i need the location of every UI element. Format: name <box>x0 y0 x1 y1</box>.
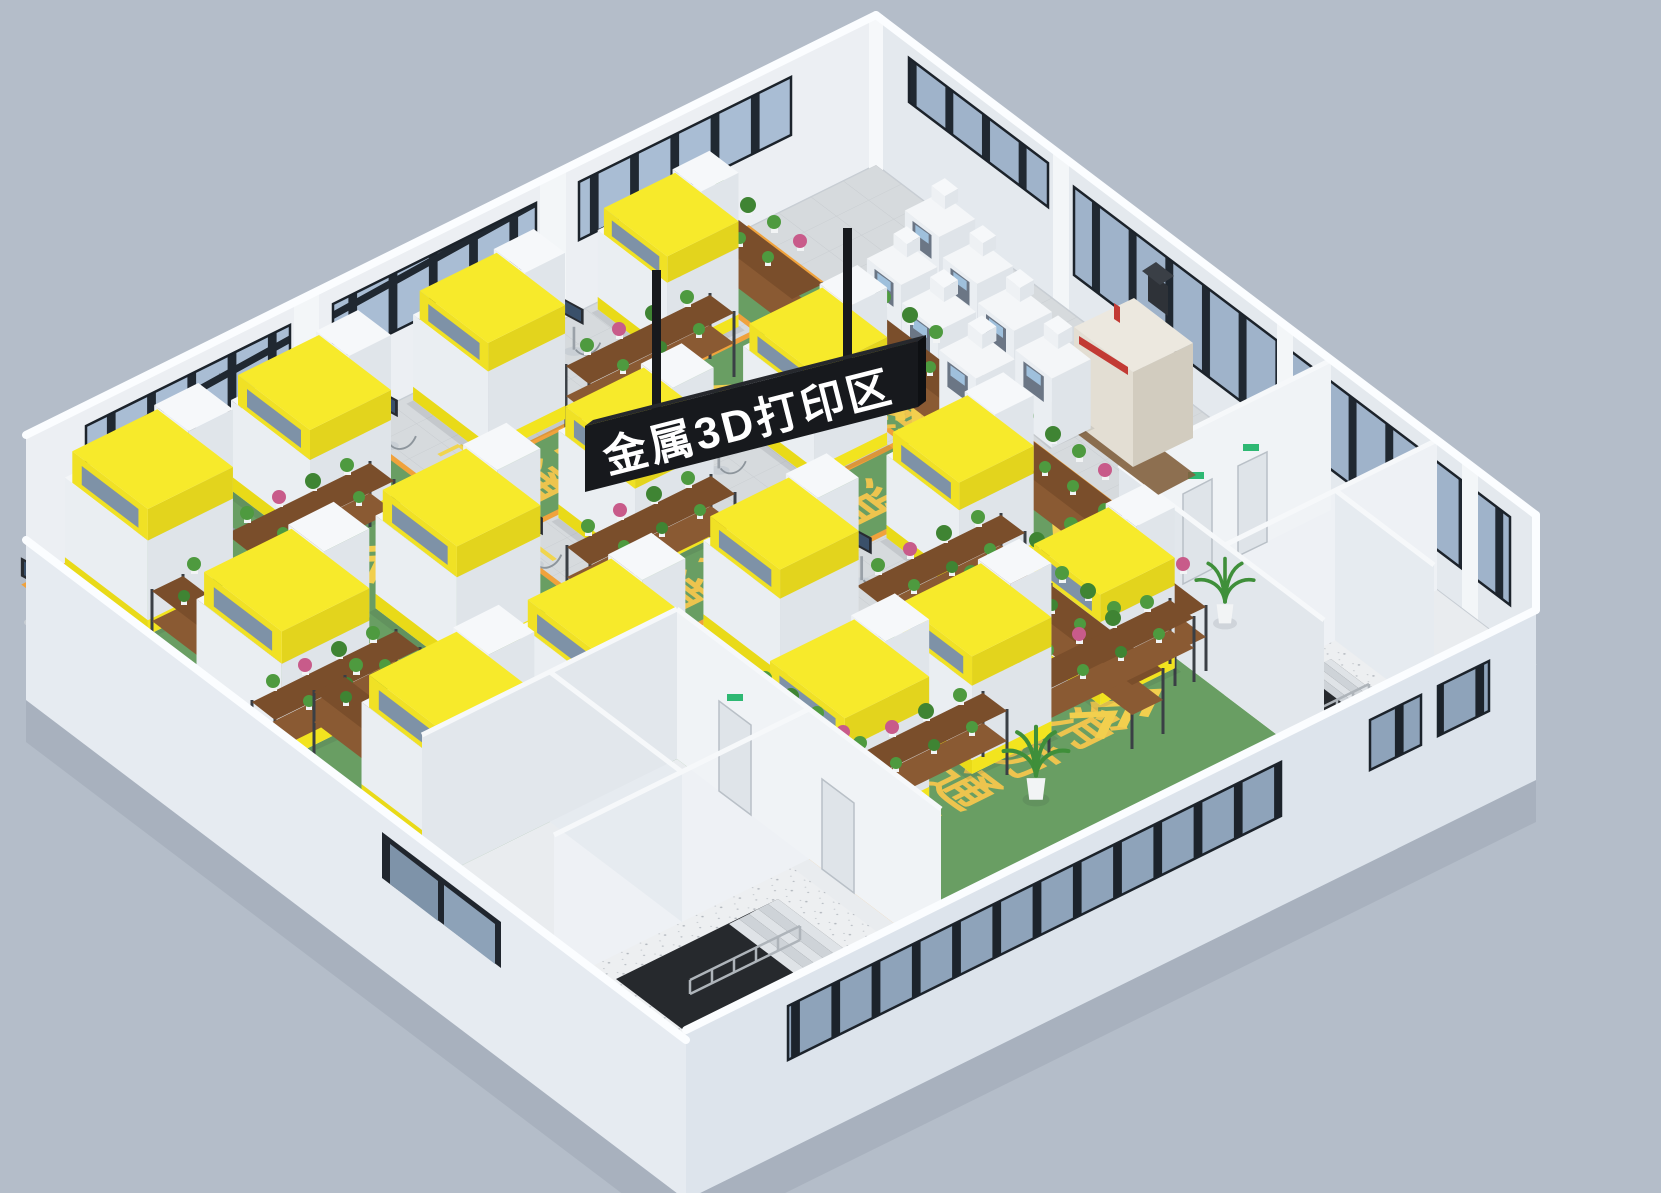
door <box>1238 452 1267 556</box>
sign-panel-side <box>918 335 926 407</box>
exit-sign <box>1243 444 1259 451</box>
wall-pilaster <box>1053 151 1069 313</box>
exit-sign <box>727 694 743 701</box>
scene-canvas: 消 防 通 道 消 防 通 道 消 防 消 防 通 道 消 防 通 道 消 防 <box>0 0 1661 1193</box>
wall-pilaster <box>1462 461 1478 623</box>
corner-column <box>869 15 883 170</box>
factory-3d-render: 消 防 通 道 消 防 通 道 消 防 消 防 通 道 消 防 通 道 消 防 <box>0 0 1661 1193</box>
